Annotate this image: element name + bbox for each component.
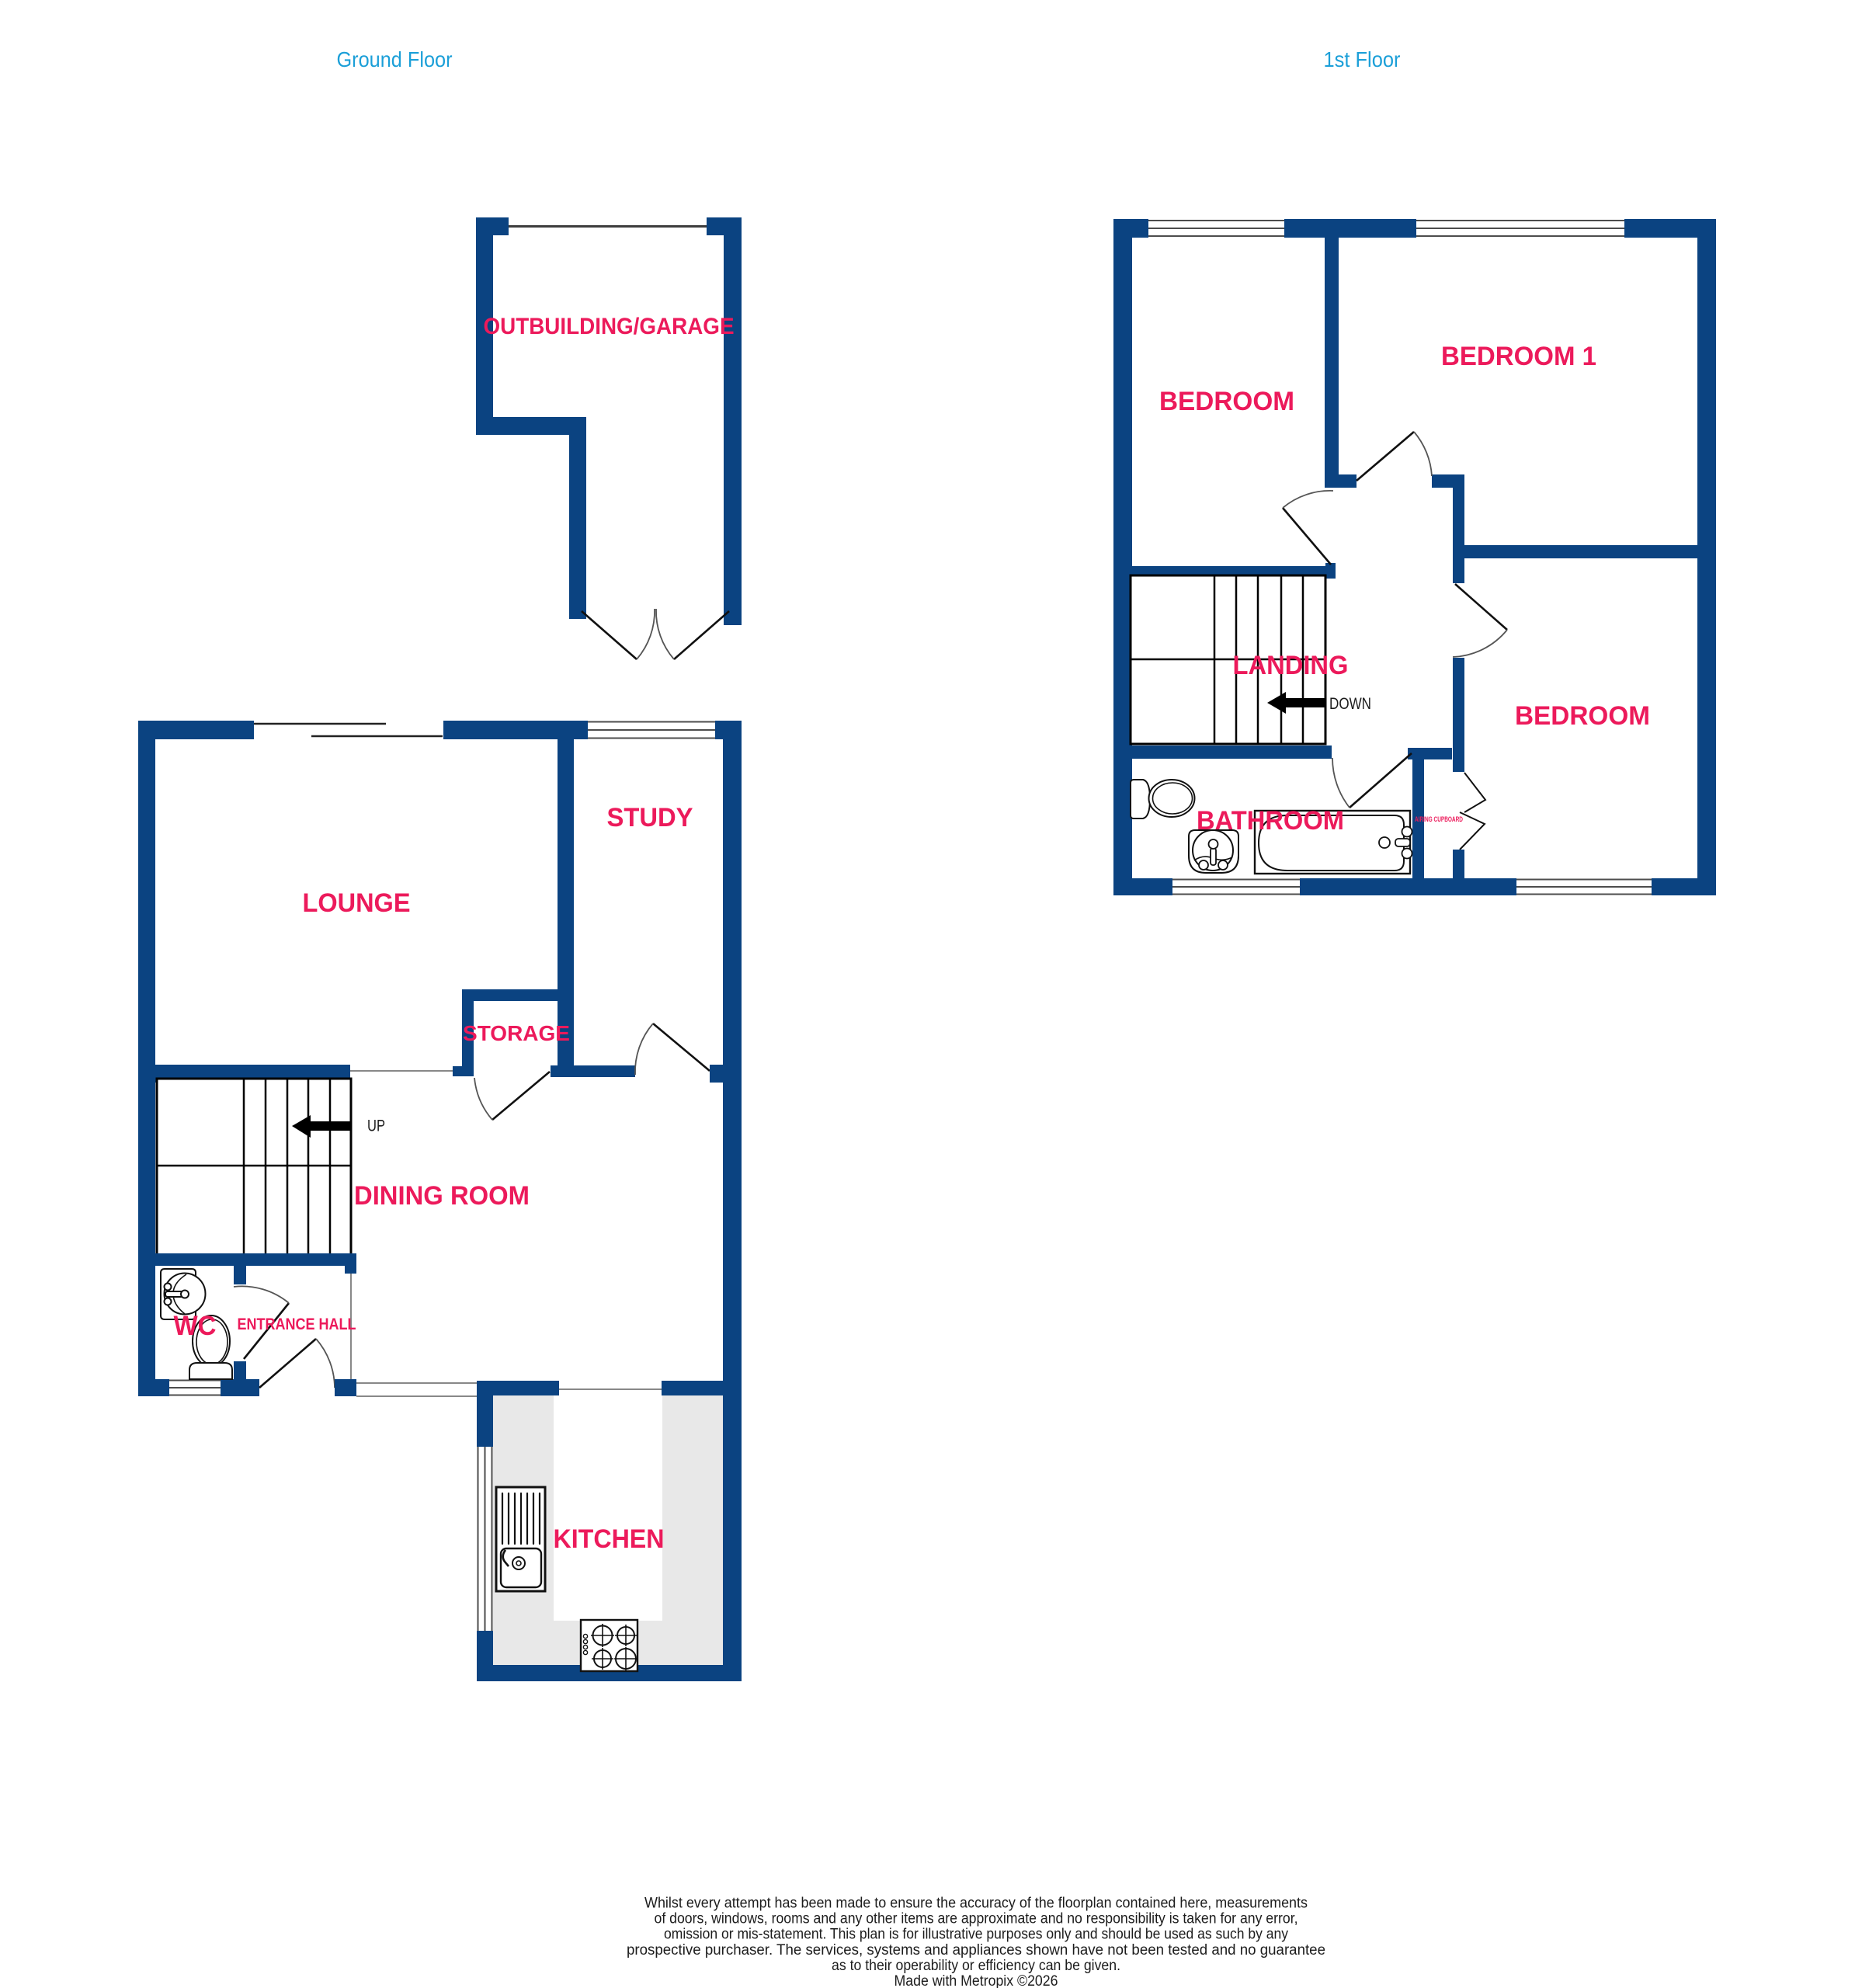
svg-text:DINING ROOM: DINING ROOM [354, 1181, 530, 1211]
svg-text:LANDING: LANDING [1233, 651, 1349, 680]
svg-text:1st Floor: 1st Floor [1324, 47, 1401, 71]
svg-text:BEDROOM 1: BEDROOM 1 [1441, 342, 1596, 371]
svg-text:prospective purchaser. The ser: prospective purchaser. The services, sys… [627, 1942, 1325, 1958]
svg-text:Ground Floor: Ground Floor [337, 47, 453, 71]
svg-text:OUTBUILDING/GARAGE: OUTBUILDING/GARAGE [484, 314, 735, 339]
svg-text:DOWN: DOWN [1329, 695, 1371, 713]
svg-text:Made with Metropix ©2026: Made with Metropix ©2026 [894, 1973, 1058, 1988]
svg-text:WC: WC [174, 1311, 217, 1341]
svg-text:BATHROOM: BATHROOM [1197, 806, 1344, 836]
svg-text:KITCHEN: KITCHEN [554, 1524, 665, 1554]
svg-text:UP: UP [367, 1117, 385, 1135]
svg-text:STORAGE: STORAGE [463, 1021, 570, 1045]
svg-text:as to their operability or eff: as to their operability or efficiency ca… [832, 1958, 1120, 1974]
svg-text:LOUNGE: LOUNGE [303, 888, 411, 918]
svg-text:BEDROOM: BEDROOM [1159, 387, 1294, 416]
svg-text:BEDROOM: BEDROOM [1515, 701, 1650, 731]
svg-text:of doors, windows, rooms and a: of doors, windows, rooms and any other i… [655, 1911, 1298, 1927]
svg-text:STUDY: STUDY [607, 803, 693, 832]
svg-text:ENTRANCE HALL: ENTRANCE HALL [238, 1315, 356, 1333]
svg-text:AIRING CUPBOARD: AIRING CUPBOARD [1415, 815, 1463, 823]
svg-text:omission or mis-statement. Thi: omission or mis-statement. This plan is … [664, 1927, 1288, 1943]
svg-text:Whilst every attempt has been: Whilst every attempt has been made to en… [644, 1896, 1308, 1912]
